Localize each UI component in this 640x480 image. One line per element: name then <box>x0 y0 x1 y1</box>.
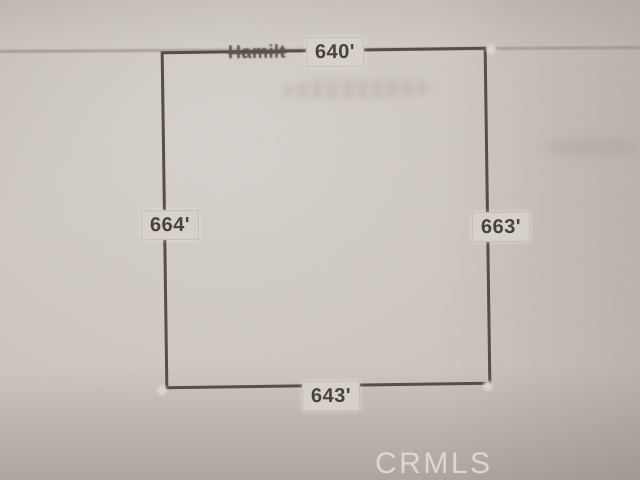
plat-map-photo: Hamilt 640' 664' 663' 643' CRMLS <box>0 0 640 480</box>
dimension-label-right: 663' <box>472 212 530 243</box>
bleed-through-smudge-right <box>540 140 640 154</box>
dimension-label-left: 664' <box>141 210 199 241</box>
dimension-label-bottom: 643' <box>302 381 360 412</box>
dimension-label-top: 640' <box>306 37 364 68</box>
crmls-watermark: CRMLS <box>375 447 493 480</box>
corner-marker-bottom-left <box>157 385 167 395</box>
corner-marker-top-right <box>486 44 496 54</box>
street-name-label: Hamilt <box>228 42 286 64</box>
corner-marker-bottom-right <box>483 381 493 391</box>
